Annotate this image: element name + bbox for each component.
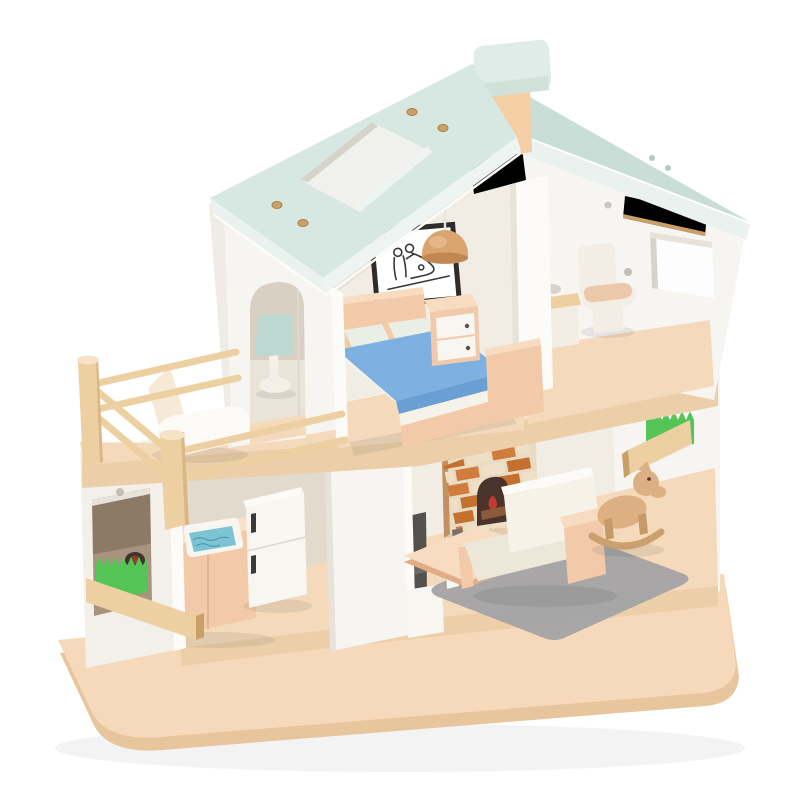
fridge <box>243 487 312 613</box>
dresser <box>424 294 480 366</box>
product-photo-dollhouse <box>0 0 800 800</box>
table-lamp-shade <box>255 314 294 356</box>
wall-screw <box>624 268 632 276</box>
table-lamp-base <box>259 377 291 393</box>
post-cap <box>159 430 185 440</box>
drawer-knob <box>466 346 470 350</box>
fridge-handle <box>251 513 256 533</box>
footboard <box>486 345 544 424</box>
wall-screw <box>605 202 612 209</box>
roof-screw <box>649 155 655 161</box>
dollhouse-illustration <box>0 0 800 800</box>
lamp-highlight <box>429 236 447 248</box>
toilet-base <box>592 302 624 334</box>
horse-muzzle <box>650 486 666 498</box>
roof-screw <box>665 165 671 171</box>
post-cap <box>77 356 99 365</box>
fridge-handle <box>251 555 256 574</box>
fridge-front <box>246 494 307 608</box>
planter-ledge-end <box>196 613 204 640</box>
drawer-knob <box>465 324 469 328</box>
table-lamp-stem <box>269 355 279 379</box>
lamp-shade-rim <box>422 253 468 264</box>
wall-screw <box>116 488 124 496</box>
horse-eye <box>647 477 651 481</box>
